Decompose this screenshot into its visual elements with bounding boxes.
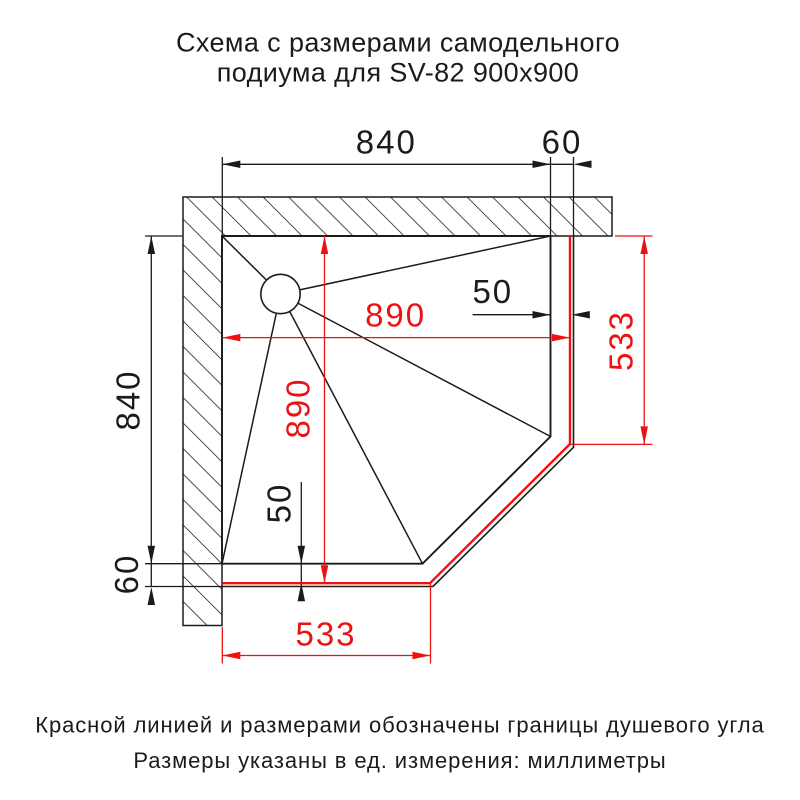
svg-text:50: 50 bbox=[472, 273, 513, 310]
svg-text:подиума для SV-82 900x900: подиума для SV-82 900x900 bbox=[217, 58, 579, 88]
svg-text:840: 840 bbox=[110, 369, 147, 430]
svg-text:890: 890 bbox=[280, 377, 317, 438]
svg-text:Схема с размерами самодельного: Схема с размерами самодельного bbox=[176, 28, 620, 58]
svg-text:Красной линией и размерами обо: Красной линией и размерами обозначены гр… bbox=[35, 713, 764, 738]
svg-text:Размеры указаны в ед. измерени: Размеры указаны в ед. измерения: миллиме… bbox=[133, 748, 666, 773]
svg-text:60: 60 bbox=[108, 554, 145, 595]
svg-text:890: 890 bbox=[365, 296, 426, 333]
svg-text:840: 840 bbox=[356, 124, 417, 161]
svg-text:533: 533 bbox=[603, 310, 640, 371]
svg-text:533: 533 bbox=[295, 616, 356, 653]
svg-text:50: 50 bbox=[260, 483, 297, 524]
svg-text:60: 60 bbox=[542, 124, 583, 161]
